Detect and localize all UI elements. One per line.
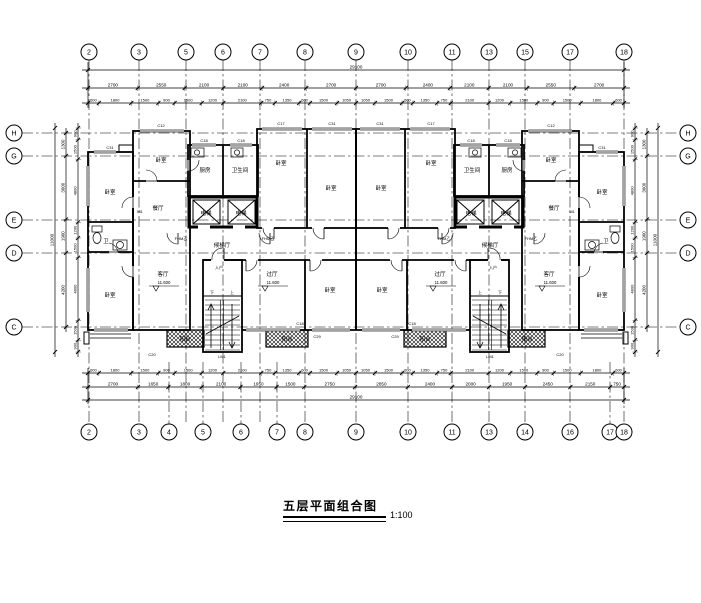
dimension-text: 2100 xyxy=(465,368,475,373)
dimension-text: 1200 xyxy=(208,98,218,103)
dimension-text: 1500 xyxy=(184,368,194,373)
dimension-text: 2700 xyxy=(326,83,337,88)
room-label: 卧室 xyxy=(596,188,608,196)
dimension-text: 1200 xyxy=(495,98,505,103)
tag-label: 入户 xyxy=(215,264,223,270)
grid-bubble-label: D xyxy=(11,250,16,257)
door-swing xyxy=(122,197,133,208)
room-label: 电梯 xyxy=(200,209,212,217)
elevation-value: 11.600 xyxy=(435,280,448,285)
dimension-text: 1350 xyxy=(421,368,431,373)
grid-bubble-label: 9 xyxy=(354,49,358,56)
dimension-text: 900 xyxy=(630,342,635,349)
grid-bubble-label: H xyxy=(685,130,690,137)
dimension-text: 1500 xyxy=(73,325,78,335)
dimension-text: 1050 xyxy=(342,368,352,373)
dimension-text: 900 xyxy=(542,98,549,103)
tag-label: FHM乙 xyxy=(525,235,538,241)
elevation-marker xyxy=(262,286,268,291)
dimension-text: 900 xyxy=(542,368,549,373)
dimension-text: 1500 xyxy=(519,98,529,103)
ledge xyxy=(84,332,89,344)
grid-bubble-label: 10 xyxy=(404,429,412,436)
room-label: 卧室 xyxy=(325,184,337,192)
dimension-text: 900 xyxy=(630,130,635,137)
dimension-text: 2100 xyxy=(503,83,514,88)
elevation-marker xyxy=(153,286,159,291)
grid-bubble-label: 7 xyxy=(275,429,279,436)
door-gap xyxy=(312,227,324,230)
tag-label: M1 xyxy=(569,209,575,214)
grid-bubble-label: G xyxy=(685,153,690,160)
room-label: 卫 xyxy=(103,238,109,245)
dimension-text: 600 xyxy=(404,98,411,103)
dimension-text: 750 xyxy=(441,98,448,103)
room-label: 卧室 xyxy=(324,286,336,294)
drawing-title: 五层平面组合图 xyxy=(283,497,443,514)
room-label: 卧室 xyxy=(104,291,116,299)
grid-bubble-label: 17 xyxy=(606,429,614,436)
dimension-text: 1500 xyxy=(319,98,329,103)
room-label: 卧室 xyxy=(375,184,387,192)
grid-bubble-label: 15 xyxy=(521,49,529,56)
door-gap xyxy=(246,259,258,262)
grid-bubble-label: 10 xyxy=(404,49,412,56)
title-underline xyxy=(283,516,386,522)
dimension-text: 2400 xyxy=(423,83,434,88)
grid-bubble-label: 4 xyxy=(167,429,171,436)
dimension-text: 1500 xyxy=(384,98,394,103)
room-label: 卧室 xyxy=(104,188,116,196)
dimension-text: 2000 xyxy=(465,382,476,387)
dimension-text: 2700 xyxy=(376,83,387,88)
room-label: 候梯厅 xyxy=(482,241,499,249)
dimension-text: 2100 xyxy=(238,98,248,103)
walls xyxy=(88,129,356,352)
grid-bubble-label: 6 xyxy=(239,429,243,436)
grid-bubble-label: 8 xyxy=(303,49,307,56)
dimension-text: 2850 xyxy=(376,382,387,387)
dimension-text: 2700 xyxy=(108,83,119,88)
dimension-text: 4200 xyxy=(642,285,647,295)
grid-bubble-label: 13 xyxy=(485,49,493,56)
tag-label: C29 xyxy=(391,334,399,339)
room-label: 卧室 xyxy=(376,286,388,294)
tag-label: C31 xyxy=(106,145,114,150)
room-label: 阳台 xyxy=(179,335,191,343)
dimension-text: 1800 xyxy=(592,368,602,373)
dimension-text: 600 xyxy=(301,98,308,103)
dimension-text: 1500 xyxy=(563,98,573,103)
dimension-text: 3600 xyxy=(61,182,66,192)
door-swing xyxy=(122,266,133,277)
room-label: 阳台 xyxy=(419,335,431,343)
room-label: 过厅 xyxy=(434,270,446,278)
grid-bubble-label: 3 xyxy=(137,429,141,436)
dimension-text: 1800 xyxy=(111,98,121,103)
grid-bubble-label: C xyxy=(11,324,16,331)
grid-bubble-label: C xyxy=(685,324,690,331)
dimension-text: 1300 xyxy=(61,139,66,149)
elevation-marker xyxy=(430,286,436,291)
dimension-text: 1500 xyxy=(285,382,296,387)
tag-label: C31 xyxy=(328,121,336,126)
tag-label: C20 xyxy=(556,352,564,357)
grid-bubble-label: 17 xyxy=(566,49,574,56)
dimension-text: 4800 xyxy=(73,186,78,196)
tag-label: C17 xyxy=(427,121,435,126)
dimension-text: 750 xyxy=(613,382,621,387)
grid-bubble-label: 9 xyxy=(354,429,358,436)
plan-labels: 2356789101113151718234567891011131416171… xyxy=(6,44,696,440)
dimension-text: 1650 xyxy=(148,382,159,387)
dimension-text: 4800 xyxy=(630,186,635,196)
dimension-text: 900 xyxy=(163,368,170,373)
grid-bubble-label: 11 xyxy=(448,429,455,436)
dimension-text: 600 xyxy=(301,368,308,373)
dimension-text: 1500 xyxy=(140,98,150,103)
tag-label: C29 xyxy=(313,334,321,339)
tag-label: C31 xyxy=(376,121,384,126)
dimension-text: 1300 xyxy=(642,139,647,149)
dimension-text: 750 xyxy=(441,368,448,373)
tag-label: C12 xyxy=(157,123,165,128)
dimension-text: 2100 xyxy=(464,83,475,88)
room-label: 过厅 xyxy=(266,270,278,278)
dimension-text: 750 xyxy=(265,368,272,373)
dimension-overall: 29100 xyxy=(350,64,363,69)
room-label: 厨房 xyxy=(501,166,513,174)
dimension-text: 2750 xyxy=(325,382,336,387)
door-swing xyxy=(212,248,224,260)
dimension-text: 2100 xyxy=(465,98,475,103)
grid-bubble-label: D xyxy=(685,250,690,257)
dimension-text: 1350 xyxy=(421,98,431,103)
dimension-text: 600 xyxy=(404,368,411,373)
room-label: 卧室 xyxy=(155,156,167,164)
grid-bubble-label: 8 xyxy=(303,429,307,436)
grid-bubble-label: 2 xyxy=(87,429,91,436)
grid-bubble-label: E xyxy=(686,217,691,224)
dimension-text: 1900 xyxy=(642,231,647,241)
grid-bubble-label: 16 xyxy=(566,429,574,436)
grid-bubble-label: 6 xyxy=(221,49,225,56)
dimension-text: 900 xyxy=(73,342,78,349)
dimension-text: 1950 xyxy=(502,382,513,387)
dimension-text: 1050 xyxy=(342,98,352,103)
dimension-overall: 29100 xyxy=(350,394,363,399)
dimension-text: 1500 xyxy=(319,368,329,373)
room-label: 卧室 xyxy=(425,159,437,167)
door-swing xyxy=(146,170,157,181)
dimension-text: 1200 xyxy=(73,225,78,235)
grid-bubble-label: 11 xyxy=(448,49,455,56)
room-label: 客厅 xyxy=(157,270,169,278)
dimension-text: 1500 xyxy=(140,368,150,373)
dimension-text: 2100 xyxy=(238,368,248,373)
wall-left-block xyxy=(88,152,133,330)
dimension-text: 1500 xyxy=(630,144,635,154)
grid-bubble-label: E xyxy=(12,217,17,224)
dimension-text: 1500 xyxy=(384,368,394,373)
dimension-text: 1050 xyxy=(361,368,371,373)
tag-label: M1 xyxy=(137,209,143,214)
tag-label: FHM乙 xyxy=(438,235,451,241)
elevation-value: 11.600 xyxy=(267,280,280,285)
tag-label: C18 xyxy=(504,138,512,143)
tag-label: C12 xyxy=(547,123,555,128)
grid-bubble-label: 5 xyxy=(184,49,188,56)
floor-plan-left-half xyxy=(84,128,356,352)
room-label: 卫生间 xyxy=(464,166,481,174)
elevator-door-gap xyxy=(198,225,210,228)
dimension-text: 1500 xyxy=(519,368,529,373)
elevation-marker xyxy=(539,286,545,291)
dimension-text: 900 xyxy=(163,98,170,103)
wall-stair-shaft xyxy=(203,260,242,352)
dimension-text: 2400 xyxy=(425,382,436,387)
tag-label: C18 xyxy=(296,321,304,326)
grid-bubble-label: 18 xyxy=(620,429,628,436)
ac-ledge xyxy=(119,145,133,152)
dimension-text: 2100 xyxy=(199,83,210,88)
grid-bubble-label: G xyxy=(11,153,16,160)
elevation-value: 11.600 xyxy=(158,280,171,285)
dimension-text: 1500 xyxy=(73,243,78,253)
tag-label: LM1 xyxy=(218,354,227,359)
dimension-text: 3600 xyxy=(642,182,647,192)
tag-label: FHM乙 xyxy=(175,235,188,241)
tag-label: 上 xyxy=(230,289,234,295)
room-label: 电梯 xyxy=(465,209,477,217)
dimension-text: 1800 xyxy=(111,368,121,373)
dimension-text: 1500 xyxy=(630,325,635,335)
dimension-text: 4800 xyxy=(73,284,78,294)
room-label: 阳台 xyxy=(521,335,533,343)
room-label: 厨房 xyxy=(199,166,211,174)
dimension-text: 4200 xyxy=(61,285,66,295)
dimension-text: 1200 xyxy=(630,225,635,235)
dimension-text: 2450 xyxy=(543,382,554,387)
dimension-text: 2700 xyxy=(108,382,119,387)
dimension-text: 600 xyxy=(615,98,622,103)
dimension-text: 1900 xyxy=(61,231,66,241)
tag-label: LM1 xyxy=(486,354,495,359)
dimension-text: 1350 xyxy=(283,368,293,373)
room-label: 餐厅 xyxy=(152,204,164,212)
grid-bubble-label: 3 xyxy=(137,49,141,56)
room-label: 客厅 xyxy=(543,270,555,278)
grid-bubble-label: 18 xyxy=(620,49,628,56)
dimension-overall: 11000 xyxy=(50,233,55,246)
elevator-door-gap xyxy=(233,225,245,228)
dimension-text: 1800 xyxy=(180,382,191,387)
railing xyxy=(90,334,131,338)
tag-label: C18 xyxy=(237,138,245,143)
drawing-title-block: 五层平面组合图 1:100 xyxy=(283,497,443,522)
dimension-text: 1500 xyxy=(184,98,194,103)
grid-bubble-label: 14 xyxy=(521,429,529,436)
dimension-lines: 6001800150090015001200210075013506001500… xyxy=(50,62,661,404)
tag-label: 下 xyxy=(498,290,502,295)
room-label: 阳台 xyxy=(281,335,293,343)
dimension-text: 600 xyxy=(615,368,622,373)
dimension-text: 750 xyxy=(265,98,272,103)
dimension-text: 1350 xyxy=(283,98,293,103)
dimension-text: 1950 xyxy=(253,382,264,387)
door-gap xyxy=(262,227,274,230)
tag-label: C18 xyxy=(200,138,208,143)
room-label: 卧室 xyxy=(545,156,557,164)
dimension-text: 2550 xyxy=(156,83,167,88)
dimension-text: 1500 xyxy=(563,368,573,373)
grid-bubble-label: H xyxy=(11,130,16,137)
dimension-text: 1200 xyxy=(208,368,218,373)
grid-bubble-label: 13 xyxy=(485,429,493,436)
door-swing xyxy=(313,228,324,239)
floor-plan-right-half xyxy=(356,128,628,352)
room-label: 卫生间 xyxy=(232,166,249,174)
drawing-sheet: 6001800150090015001200210075013506001500… xyxy=(0,0,701,603)
dimension-text: 1500 xyxy=(630,243,635,253)
room-label: 卧室 xyxy=(596,291,608,299)
stair-arrows xyxy=(206,304,239,348)
elevation-value: 11.600 xyxy=(544,280,557,285)
dimension-text: 2400 xyxy=(279,83,290,88)
dimension-overall: 11000 xyxy=(653,233,658,246)
tag-label: 入户 xyxy=(489,264,497,270)
drawing-scale: 1:100 xyxy=(390,510,413,520)
room-label: 卧室 xyxy=(275,159,287,167)
door-gap xyxy=(211,259,224,262)
room-label: 电梯 xyxy=(500,209,512,217)
dimension-text: 1500 xyxy=(73,144,78,154)
dimension-text: 4800 xyxy=(630,284,635,294)
door-gap xyxy=(310,259,322,262)
door-swing xyxy=(246,260,257,271)
tag-label: C18 xyxy=(408,321,416,326)
tag-label: C18 xyxy=(467,138,475,143)
tag-label: 上 xyxy=(478,289,482,295)
dimension-text: 600 xyxy=(90,368,97,373)
tag-label: FHM乙 xyxy=(262,235,275,241)
dimension-text: 1800 xyxy=(592,98,602,103)
dimension-text: 2100 xyxy=(238,83,249,88)
door-swing xyxy=(310,260,321,271)
grid-bubble-label: 7 xyxy=(258,49,262,56)
dimension-text: 600 xyxy=(90,98,97,103)
tag-label: C17 xyxy=(277,121,285,126)
dimension-text: 1050 xyxy=(361,98,371,103)
room-label: 电梯 xyxy=(235,209,247,217)
dimension-text: 2550 xyxy=(546,83,557,88)
dimension-text: 2100 xyxy=(216,382,227,387)
room-label: 候梯厅 xyxy=(214,241,231,249)
room-label: 餐厅 xyxy=(548,204,560,212)
room-label: 卫 xyxy=(603,238,609,245)
dimension-text: 1200 xyxy=(495,368,505,373)
tag-label: 下 xyxy=(210,290,214,295)
dimension-text: 900 xyxy=(73,130,78,137)
dimension-text: 2700 xyxy=(594,83,605,88)
dimension-text: 2150 xyxy=(585,382,596,387)
grid-bubble-label: 2 xyxy=(87,49,91,56)
tag-label: C20 xyxy=(148,352,156,357)
grid-bubble-label: 5 xyxy=(201,429,205,436)
tag-label: C31 xyxy=(598,145,606,150)
fixtures xyxy=(92,148,243,250)
